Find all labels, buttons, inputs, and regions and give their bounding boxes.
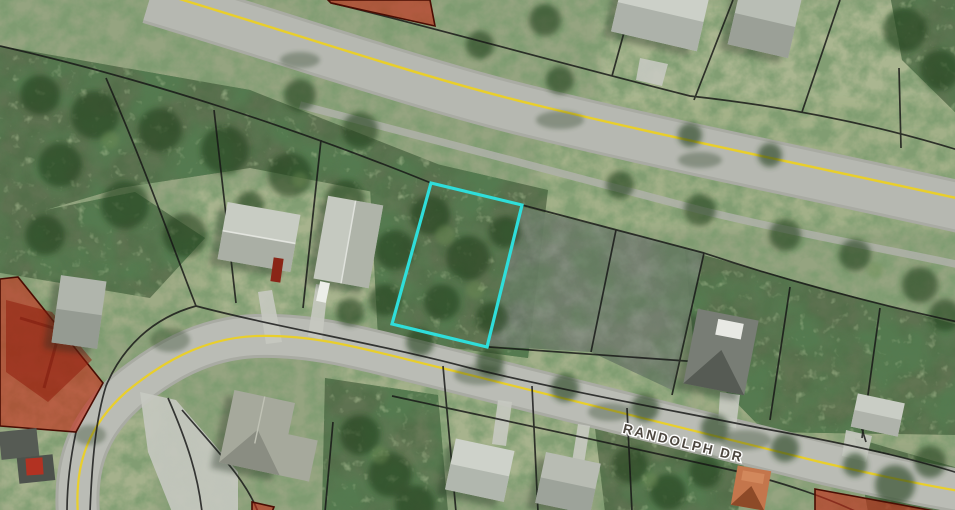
red-shed	[25, 457, 43, 475]
aerial-parcel-map[interactable]: RANDOLPH DR	[0, 0, 955, 510]
house-left	[51, 275, 106, 349]
house-orange-roof	[731, 465, 771, 510]
map-canvas[interactable]: RANDOLPH DR	[0, 0, 955, 510]
